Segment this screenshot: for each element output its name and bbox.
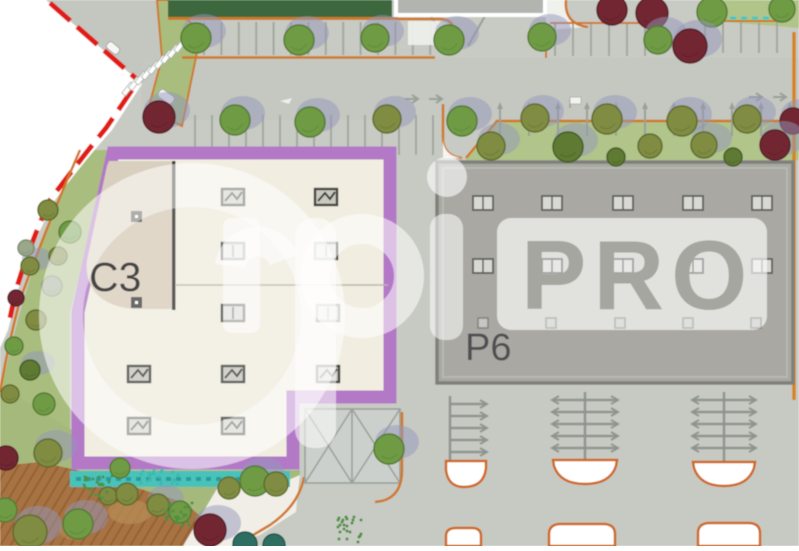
svg-text:P6: P6 xyxy=(465,327,511,369)
svg-text:PRO: PRO xyxy=(521,220,754,330)
